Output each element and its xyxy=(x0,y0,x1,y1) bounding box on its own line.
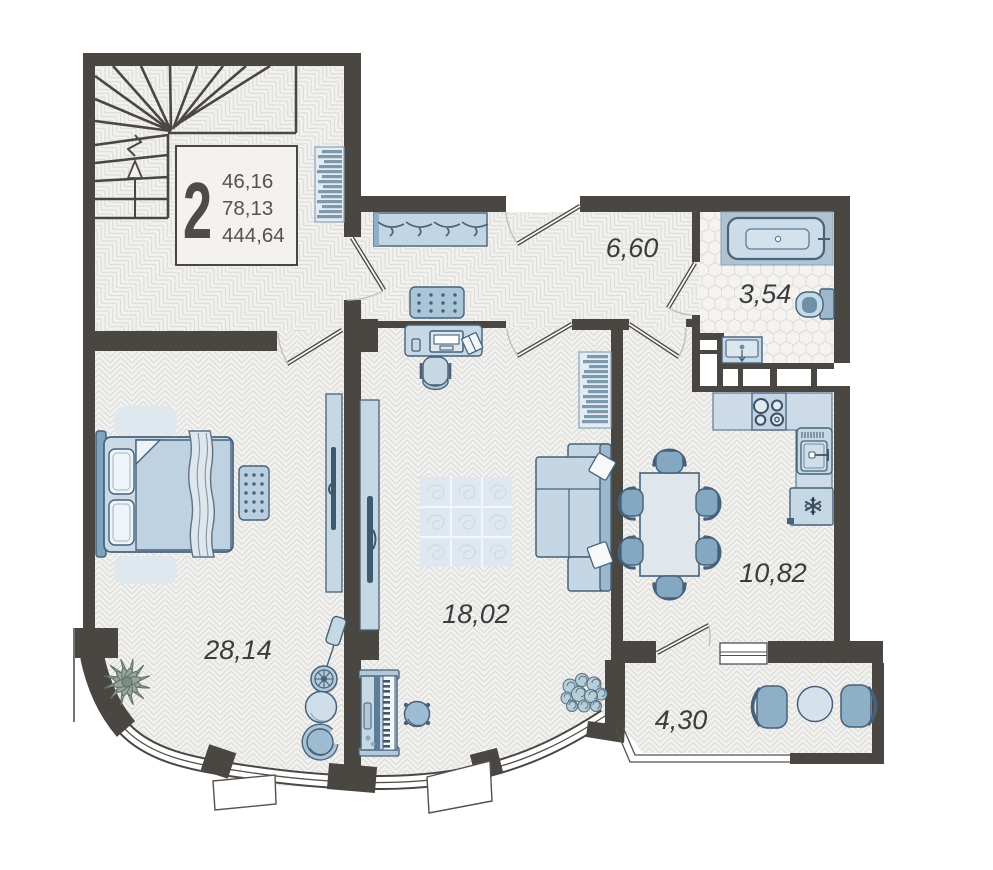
svg-text:78,13: 78,13 xyxy=(222,197,273,220)
svg-text:3,54: 3,54 xyxy=(739,279,792,309)
svg-text:4,30: 4,30 xyxy=(655,705,708,735)
svg-text:28,14: 28,14 xyxy=(203,635,272,665)
svg-text:10,82: 10,82 xyxy=(739,558,807,588)
svg-text:46,16: 46,16 xyxy=(222,170,273,193)
svg-text:18,02: 18,02 xyxy=(442,599,510,629)
svg-text:444,64: 444,64 xyxy=(222,224,285,247)
svg-text:6,60: 6,60 xyxy=(606,233,659,263)
svg-text:2: 2 xyxy=(183,166,212,255)
